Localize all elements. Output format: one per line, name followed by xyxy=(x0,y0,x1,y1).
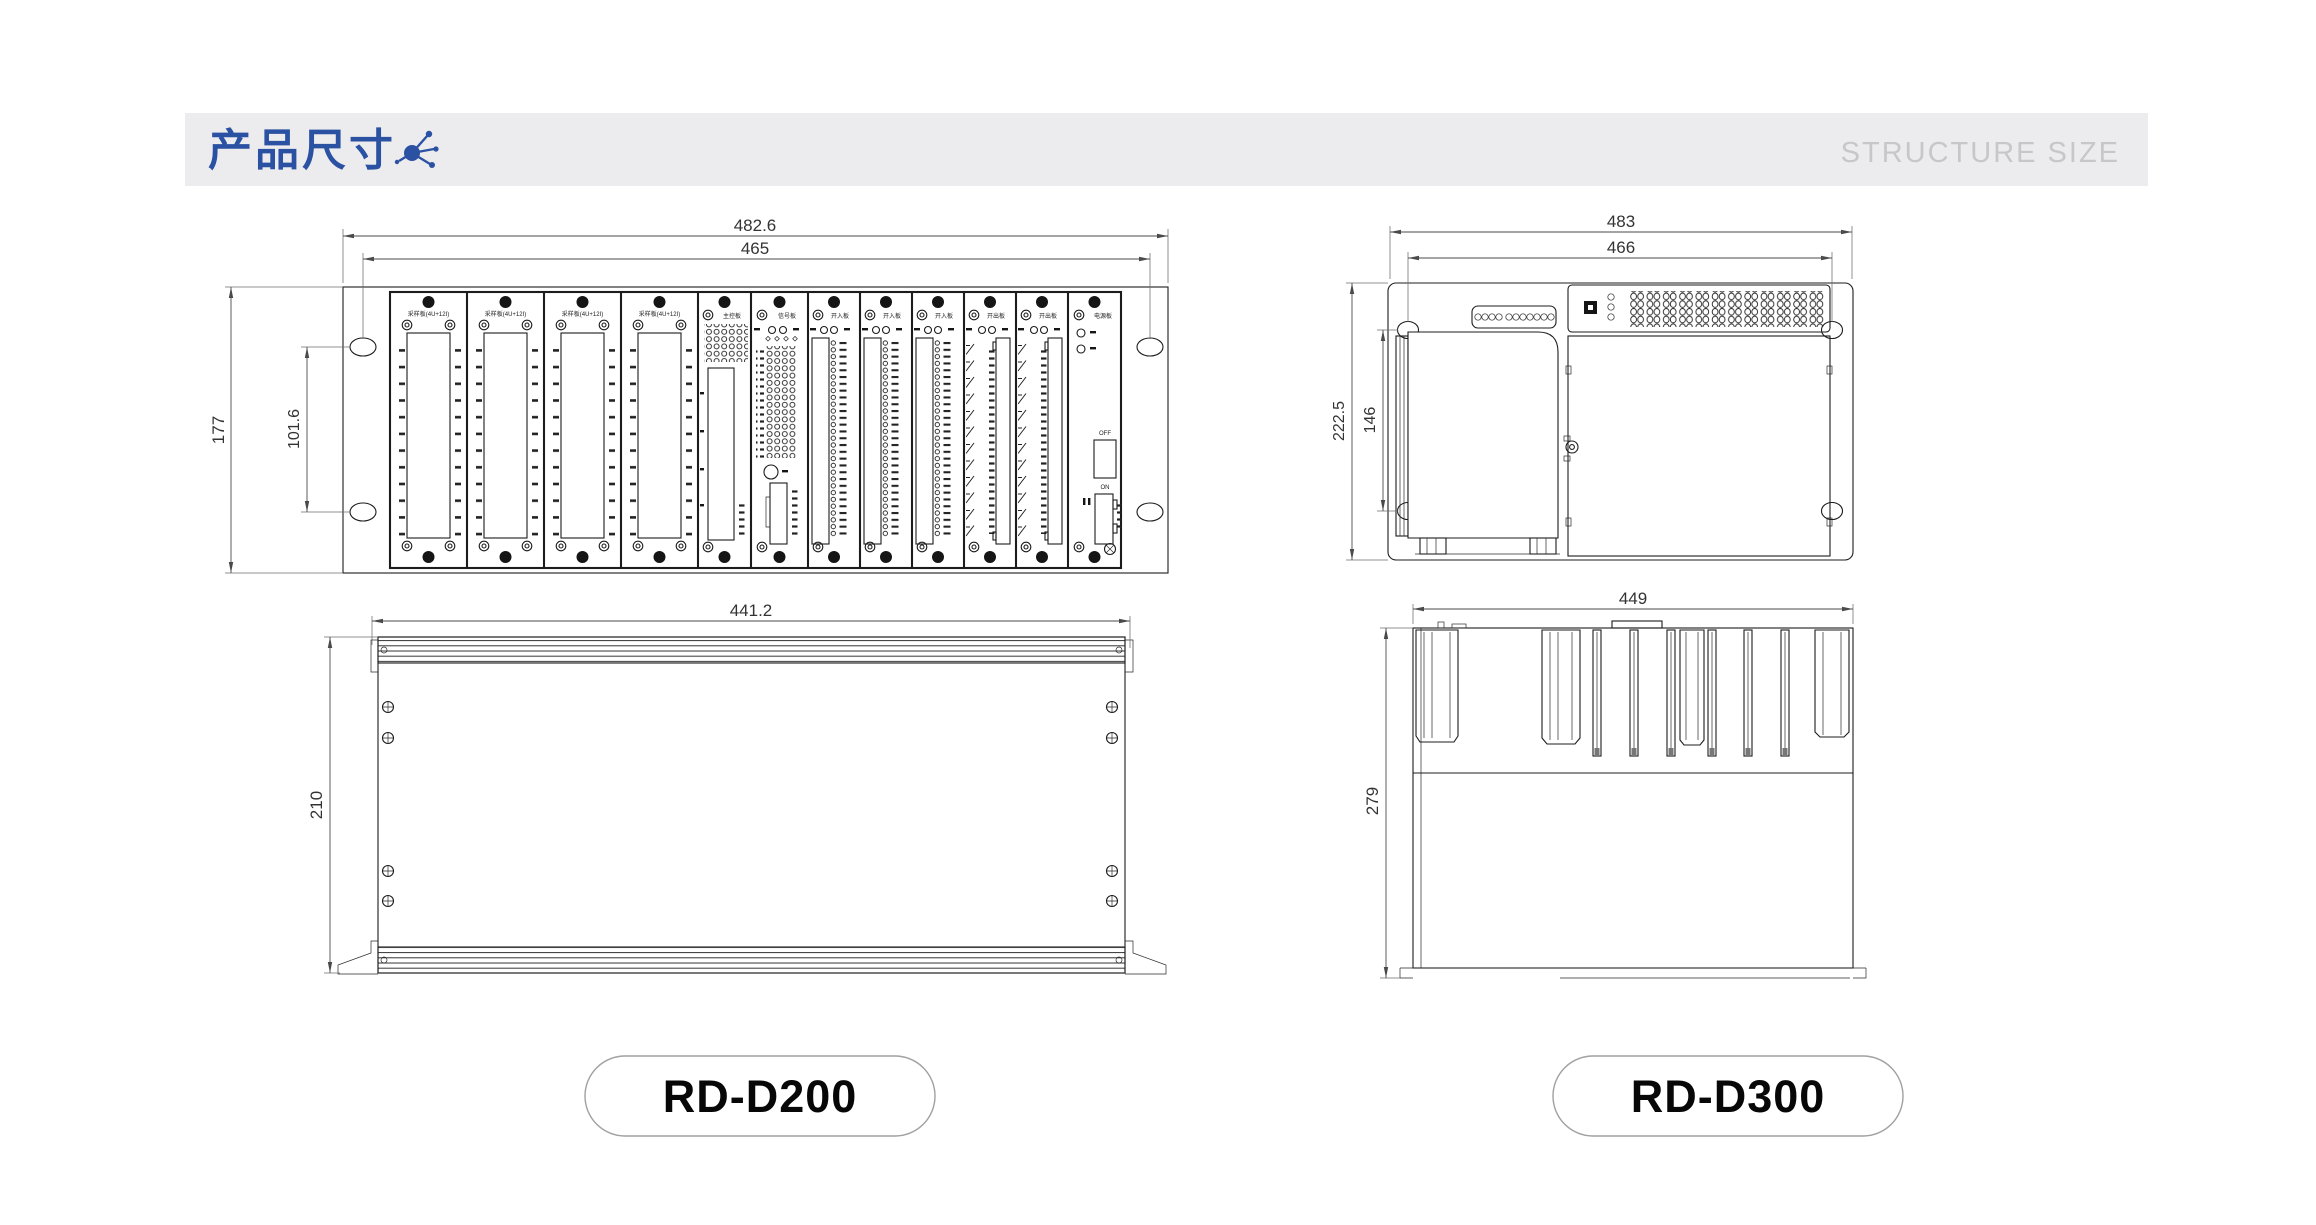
slot-5-main xyxy=(699,293,751,568)
d300-side-view: 449 279 xyxy=(1363,589,1866,978)
d200-depth-dim: 210 xyxy=(307,637,378,973)
terminal-hole-array xyxy=(1628,291,1824,327)
svg-text:449: 449 xyxy=(1619,589,1647,608)
d300-front-view: 483 466 222.5 146 xyxy=(1331,212,1853,560)
svg-text:441.2: 441.2 xyxy=(730,601,773,620)
slot-8-digital-in xyxy=(861,293,912,568)
svg-text:222.5: 222.5 xyxy=(1331,401,1348,441)
structure-size-page: 采样板(4U+12I) 主控板 信号板 xyxy=(0,0,2316,1225)
model-name: RD-D200 xyxy=(663,1071,858,1122)
svg-text:483: 483 xyxy=(1607,212,1635,231)
svg-text:279: 279 xyxy=(1363,787,1382,815)
display-door xyxy=(1396,332,1560,554)
header: 产品尺寸 STRUCTURE SIZE xyxy=(185,113,2148,186)
slot-4-sampler xyxy=(622,293,698,568)
d200-hole-pitch-dim: 101.6 xyxy=(286,347,350,512)
d200-front-view: 482.6 465 177 101.6 xyxy=(209,216,1168,573)
slot-6-signal xyxy=(752,293,808,568)
top-tab xyxy=(1612,621,1662,628)
d300-case xyxy=(1413,628,1853,968)
flange-top-right xyxy=(1125,640,1133,672)
slot-3-sampler xyxy=(545,293,621,568)
model-label-rd-d200: RD-D200 xyxy=(585,1056,935,1136)
svg-text:146: 146 xyxy=(1362,407,1379,434)
slot-12-power xyxy=(1069,293,1123,568)
svg-text:177: 177 xyxy=(209,416,228,444)
page-title: 产品尺寸 xyxy=(208,126,396,175)
model-name: RD-D300 xyxy=(1631,1071,1826,1122)
slot-9-digital-in xyxy=(913,293,964,568)
svg-text:210: 210 xyxy=(307,791,326,819)
svg-text:465: 465 xyxy=(741,239,769,258)
header-subtitle: STRUCTURE SIZE xyxy=(1841,137,2120,169)
slot-1-sampler xyxy=(391,293,467,568)
slot-10-digital-out xyxy=(965,293,1016,568)
rail-ribbed-bottom xyxy=(378,947,1125,973)
structure-size-diagram: 采样板(4U+12I) 主控板 信号板 xyxy=(0,0,2316,1225)
d300-height-dim: 222.5 xyxy=(1331,283,1388,560)
foot-bottom-right xyxy=(1125,941,1166,974)
d200-bottom-view: 441.2 210 xyxy=(307,601,1166,974)
foot-bottom-left xyxy=(338,941,378,974)
slot-2-sampler xyxy=(468,293,544,568)
d300-side-depth-dim: 279 xyxy=(1363,628,1413,978)
base-flange xyxy=(1400,968,1866,978)
slot-11-digital-out xyxy=(1017,293,1068,568)
svg-text:101.6: 101.6 xyxy=(286,409,303,449)
svg-text:466: 466 xyxy=(1607,238,1635,257)
svg-text:482.6: 482.6 xyxy=(734,216,777,235)
rail-ribbed-top xyxy=(378,637,1125,663)
model-label-rd-d300: RD-D300 xyxy=(1553,1056,1903,1136)
d300-side-width-dim: 449 xyxy=(1413,589,1853,624)
slot-7-digital-in xyxy=(809,293,860,568)
d200-height-dim: 177 xyxy=(209,287,343,573)
d200-chassis xyxy=(378,637,1125,973)
